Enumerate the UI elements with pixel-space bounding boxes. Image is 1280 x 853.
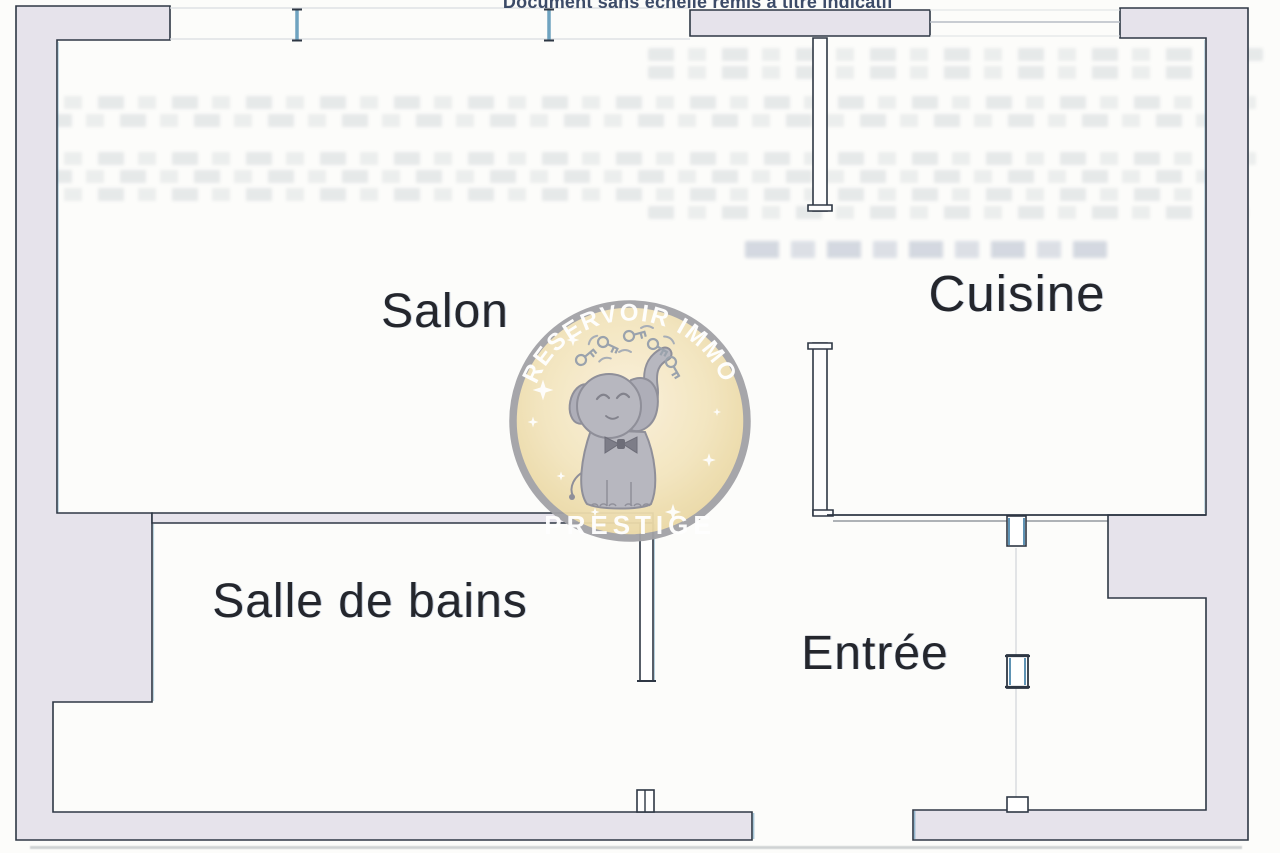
floorplan-scan: RESERVOIR IMMO PRESTIGE Salon Cuisine Sa… [0,0,1280,853]
wall-cap [808,343,832,349]
room-label-entree: Entrée [775,630,975,678]
brand-tier-label: PRESTIGE [544,510,715,540]
door-symbol [1007,516,1026,546]
wall-cap [808,205,832,211]
document-disclaimer: Document sans échelle remis à titre indi… [418,0,978,14]
wall-cuisine-upper [813,38,827,211]
wall-stub [1007,797,1028,812]
wall-stub [637,790,654,812]
wall-cuisine-lower [813,343,827,515]
door-symbol [1005,655,1030,688]
room-label-salon: Salon [345,288,545,336]
room-label-cuisine: Cuisine [912,268,1122,319]
wall-right-mass [913,8,1248,840]
window-mullion-icon [292,9,302,41]
scan-edge-artifact [30,846,1242,849]
room-label-salle-de-bains: Salle de bains [190,578,550,626]
